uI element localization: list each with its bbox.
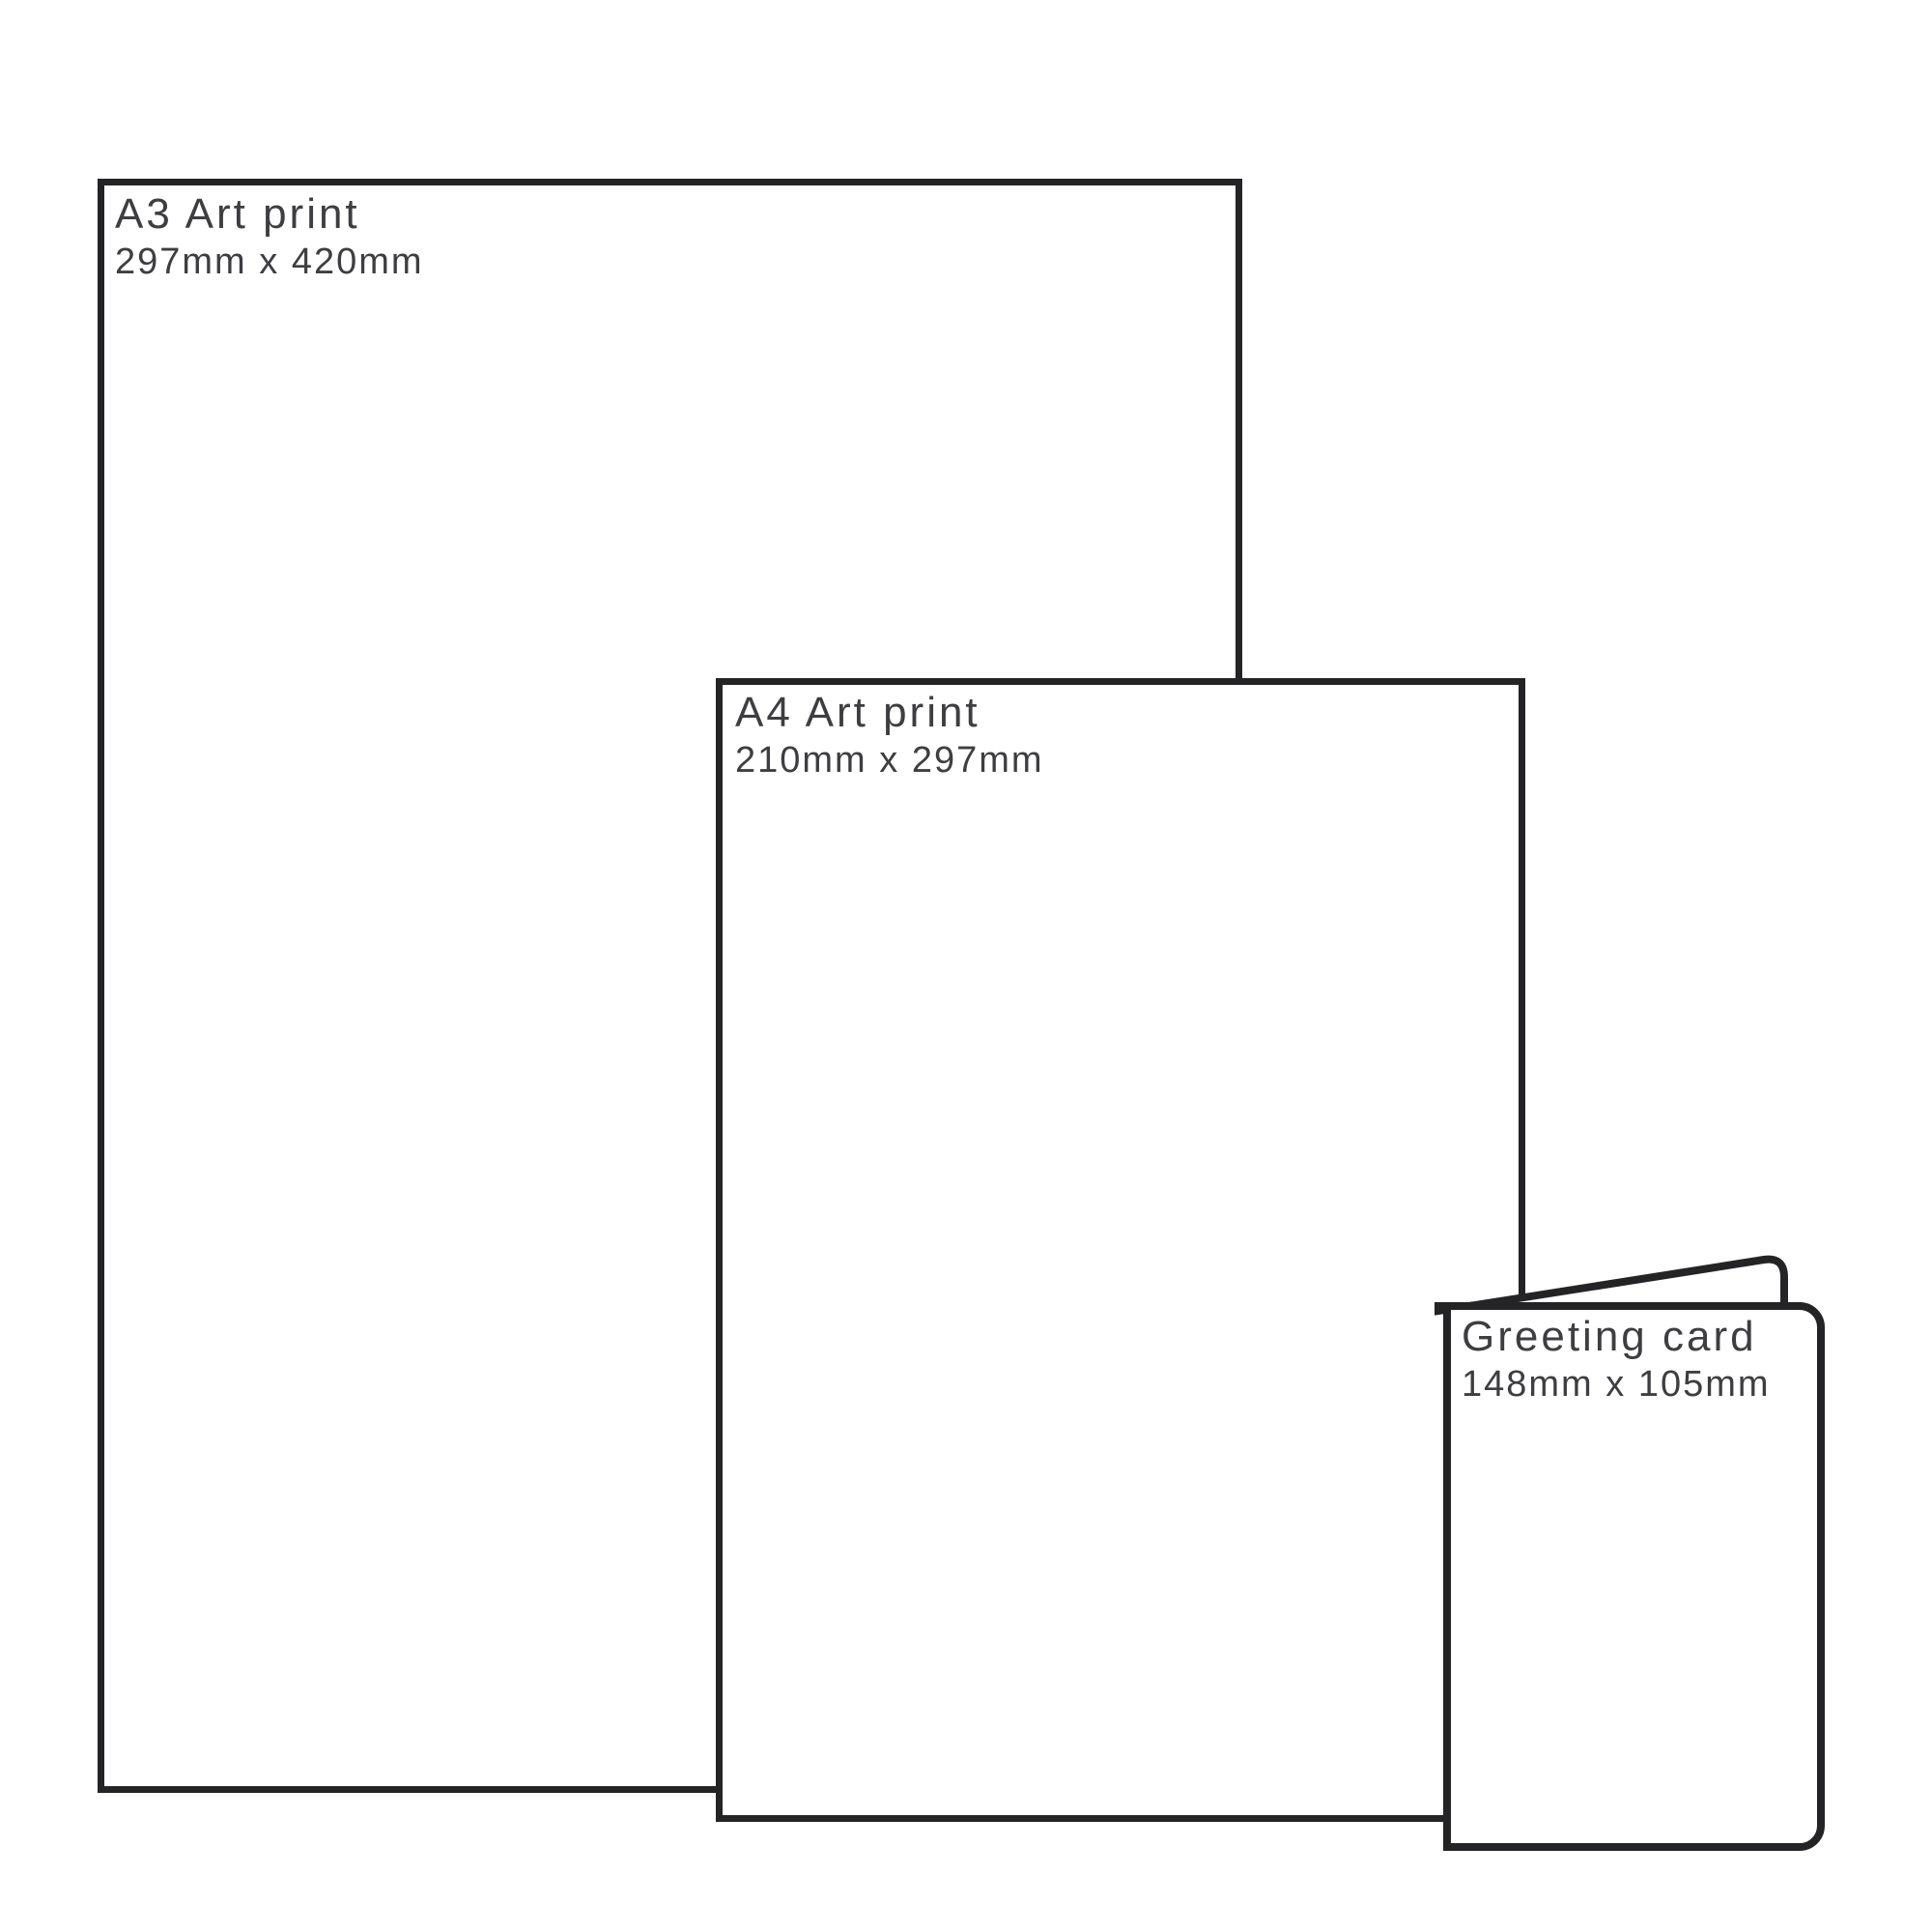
- a4-sheet: [716, 678, 1525, 1822]
- greeting-card-front: [1443, 1302, 1825, 1851]
- size-comparison-diagram: A3 Art print 297mm x 420mm A4 Art print …: [0, 0, 1932, 1932]
